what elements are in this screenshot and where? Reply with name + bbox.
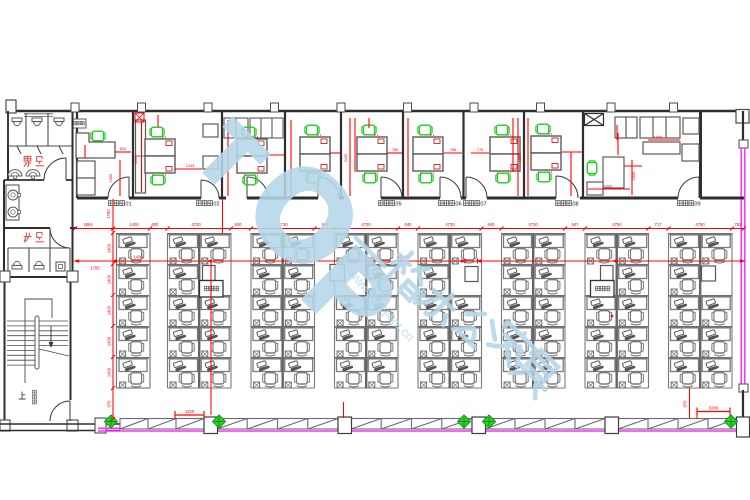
svg-text:947: 947 [572, 222, 580, 227]
svg-text:1400: 1400 [107, 305, 112, 315]
svg-text:1400: 1400 [129, 222, 139, 227]
svg-text:4730: 4730 [528, 222, 538, 227]
svg-text:05: 05 [395, 202, 401, 208]
svg-text:06: 06 [455, 202, 461, 208]
svg-text:07: 07 [480, 202, 486, 208]
svg-text:1630: 1630 [632, 172, 636, 180]
svg-text:1900: 1900 [654, 136, 662, 140]
svg-text:1400: 1400 [107, 336, 112, 346]
svg-text:4750: 4750 [695, 222, 705, 227]
svg-text:1600: 1600 [604, 185, 612, 189]
svg-text:1100: 1100 [134, 156, 138, 164]
svg-text:760: 760 [392, 148, 398, 152]
svg-text:970: 970 [107, 400, 112, 408]
svg-text:1650: 1650 [109, 174, 113, 182]
svg-text:1400: 1400 [133, 255, 143, 260]
svg-text:840: 840 [488, 222, 496, 227]
svg-text:717: 717 [655, 222, 663, 227]
svg-text:753: 753 [735, 222, 743, 227]
svg-text:1400: 1400 [107, 274, 112, 284]
svg-text:970: 970 [683, 400, 688, 408]
svg-text:01: 01 [125, 202, 131, 208]
svg-text:08: 08 [572, 202, 578, 208]
svg-text:1250: 1250 [185, 409, 195, 414]
svg-text:600: 600 [152, 222, 160, 227]
svg-text:776: 776 [477, 148, 483, 152]
svg-text:768: 768 [450, 148, 456, 152]
svg-text:1400: 1400 [107, 367, 112, 377]
svg-text:1785: 1785 [90, 266, 100, 271]
svg-text:1650: 1650 [518, 154, 522, 162]
svg-text:1864: 1864 [83, 222, 93, 227]
svg-text:4730: 4730 [191, 222, 201, 227]
svg-text:4730: 4730 [445, 222, 455, 227]
svg-text:09: 09 [694, 202, 700, 208]
svg-text:812: 812 [120, 147, 126, 151]
svg-text:4750: 4750 [612, 222, 622, 227]
svg-text:5280: 5280 [709, 406, 719, 411]
svg-text:1400: 1400 [107, 243, 112, 253]
svg-text:840: 840 [405, 222, 413, 227]
svg-text:1780: 1780 [106, 209, 111, 219]
